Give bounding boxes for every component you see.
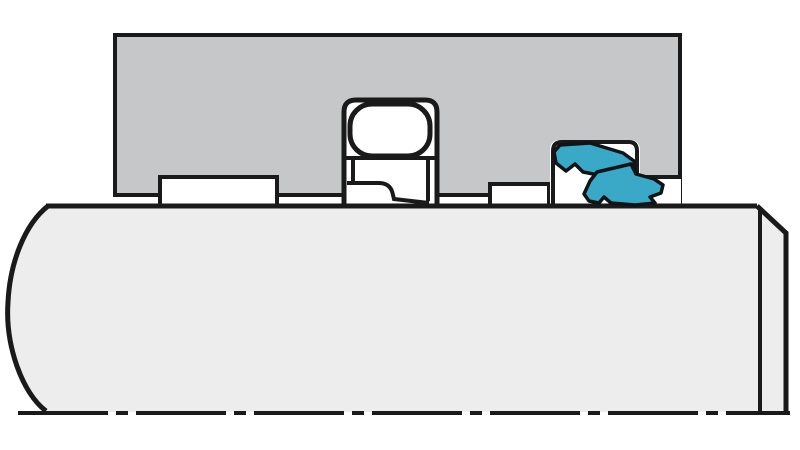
shaft	[7, 206, 786, 412]
seal-cross-section-diagram	[0, 0, 800, 450]
right-groove	[488, 183, 551, 206]
left-groove	[158, 176, 279, 206]
diagram-canvas	[0, 0, 800, 450]
